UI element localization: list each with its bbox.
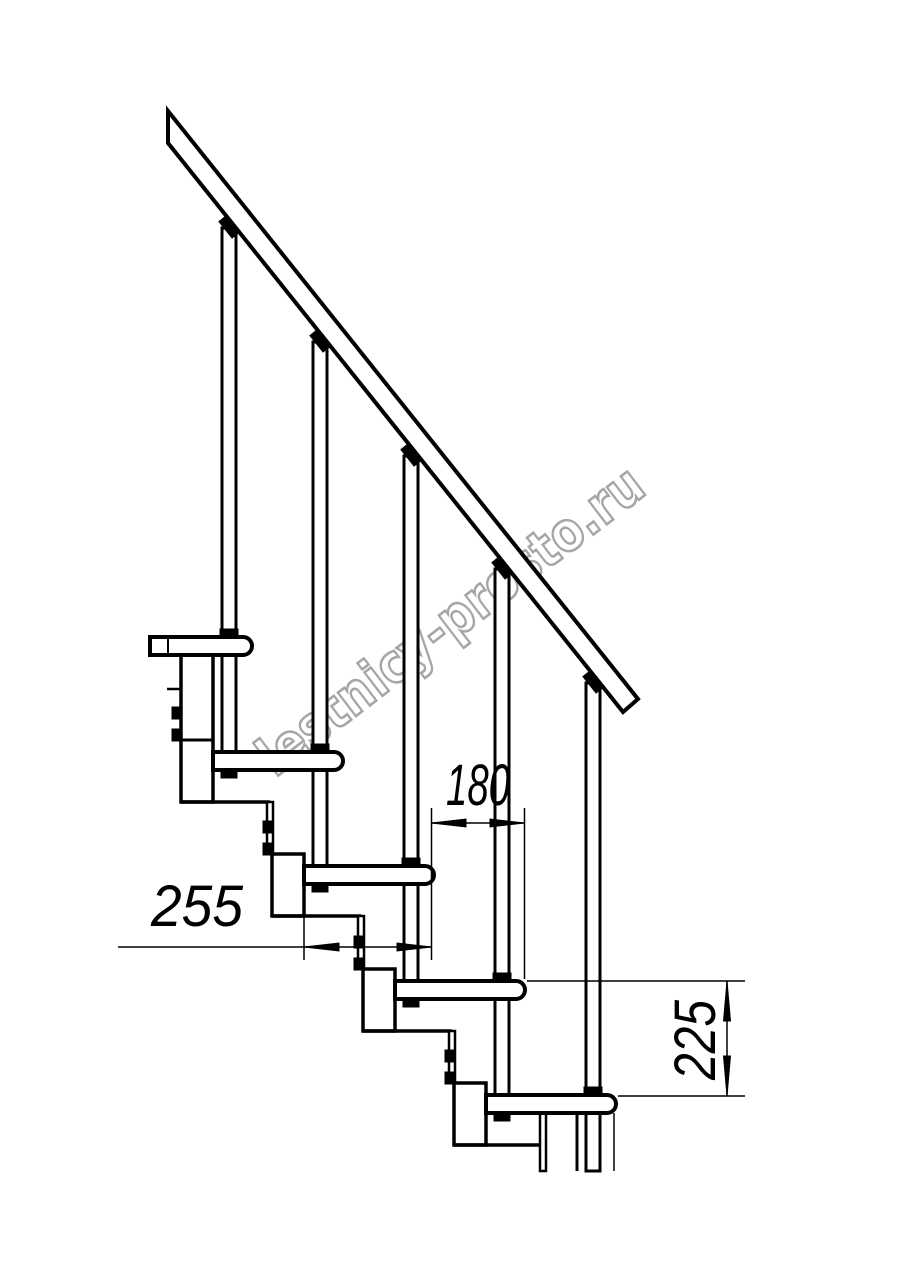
baluster bbox=[313, 342, 327, 868]
step-tread bbox=[304, 866, 434, 884]
baluster-collar bbox=[220, 629, 238, 637]
step-tread bbox=[213, 752, 343, 770]
bolt-tab bbox=[172, 707, 182, 719]
bolt-tab bbox=[172, 729, 182, 741]
support-column bbox=[454, 1083, 486, 1145]
dimension-arrow bbox=[432, 819, 467, 827]
bolt-tab bbox=[354, 936, 364, 948]
baluster bbox=[495, 569, 509, 1097]
dimension-225-label: 225 bbox=[663, 999, 728, 1080]
bolt-tab bbox=[445, 1050, 455, 1062]
baluster-collar bbox=[493, 973, 511, 981]
step-tread bbox=[395, 981, 525, 999]
baluster-nut bbox=[403, 1000, 419, 1007]
baluster-collar bbox=[402, 858, 420, 866]
bolt-tab bbox=[354, 958, 364, 970]
staircase-drawing-page: lestnicy-prosto.ru 180 255 225 bbox=[0, 0, 914, 1280]
baluster bbox=[222, 228, 236, 754]
dimension-255-label: 255 bbox=[150, 874, 244, 939]
step-tread bbox=[486, 1095, 616, 1113]
support-column bbox=[363, 969, 395, 1031]
bracket-plate bbox=[540, 1113, 546, 1171]
bolt-tab bbox=[445, 1072, 455, 1084]
baluster-nut bbox=[221, 771, 237, 778]
support-column bbox=[272, 854, 304, 916]
dimension-180-label: 180 bbox=[446, 753, 510, 818]
baluster-collar bbox=[584, 1087, 602, 1095]
baluster-nut bbox=[494, 1114, 510, 1121]
dimension-linework bbox=[118, 808, 745, 1096]
baluster-nut bbox=[312, 885, 328, 892]
dimension-arrow bbox=[304, 943, 339, 951]
support-column bbox=[181, 655, 213, 802]
bolt-tab bbox=[263, 821, 273, 833]
bolt-tab bbox=[263, 843, 273, 855]
baluster bbox=[404, 456, 418, 983]
step-tread bbox=[150, 637, 252, 655]
baluster-collar bbox=[311, 744, 329, 752]
stair-technical-drawing: lestnicy-prosto.ru 180 255 225 bbox=[0, 0, 914, 1280]
